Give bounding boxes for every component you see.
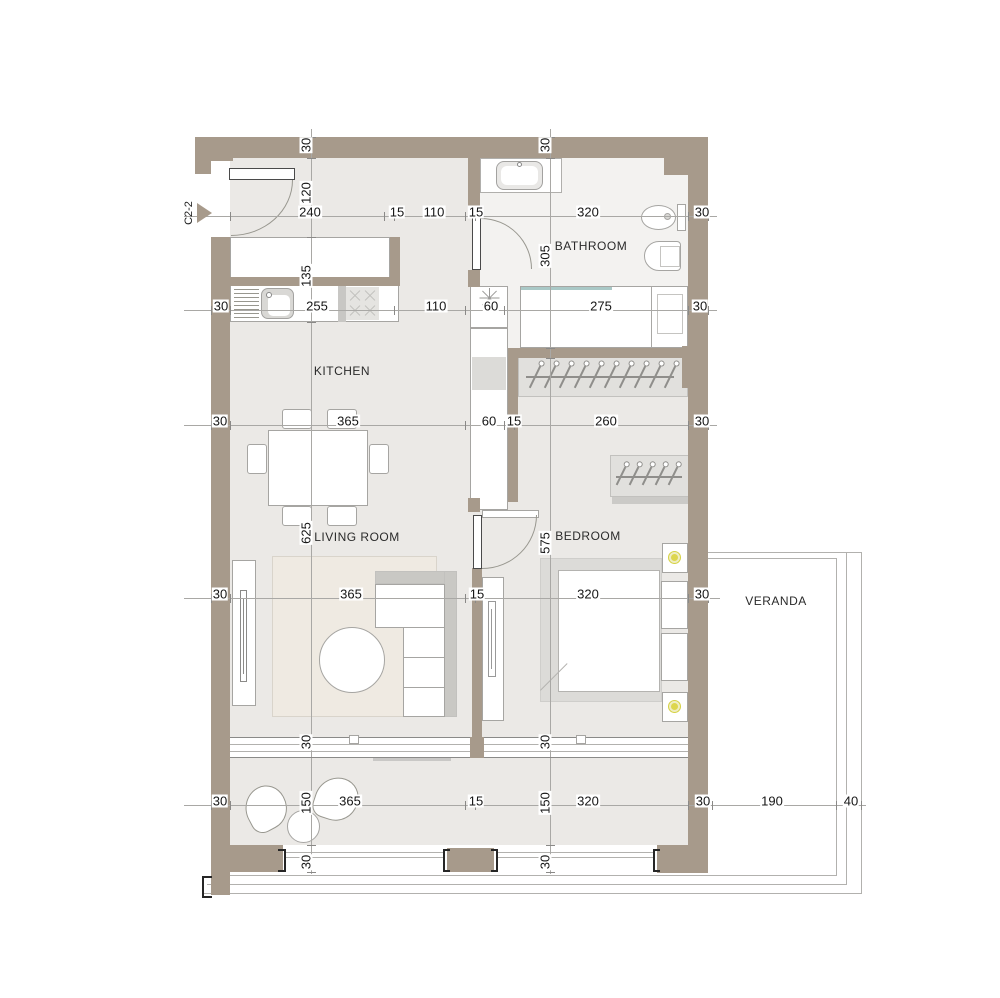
veranda-edge [861, 552, 862, 894]
dimension-label: 15 [468, 795, 484, 808]
washbasin-bowl [501, 166, 538, 185]
dimension-line [184, 425, 717, 426]
wall-closet-east [390, 237, 400, 286]
dimension-label: 30 [212, 415, 228, 428]
basin-tap-icon [517, 162, 522, 167]
kitchen-sink-bowl [268, 295, 290, 316]
tall-cabinet-block [472, 357, 506, 390]
railing-line [202, 893, 862, 894]
railing-line [207, 884, 847, 885]
bedroom-dresser-inner [488, 601, 496, 677]
wall-closet-south [230, 277, 400, 286]
bed-mattress [558, 570, 660, 692]
wall-bottom-left [211, 845, 283, 872]
dimension-label: 15 [469, 588, 485, 601]
bedroom-door-leaf [473, 515, 482, 569]
room-label-kitchen: KITCHEN [314, 364, 370, 378]
dimension-line [184, 310, 717, 311]
dimension-tick [230, 421, 231, 430]
dimension-line [184, 598, 720, 599]
toilet-cistern [677, 204, 686, 231]
dimension-tick [465, 212, 466, 221]
sofa-seat [403, 687, 445, 717]
dimension-tick [712, 801, 713, 810]
dimension-label: 30 [694, 415, 710, 428]
frame-bracket [443, 849, 450, 872]
dimension-tick [688, 801, 689, 810]
dimension-tick [688, 212, 689, 221]
dimension-label: 30 [212, 795, 228, 808]
sink-tap-icon [266, 292, 272, 298]
unit-marker-triangle-icon [197, 203, 212, 223]
bedroom-dresser-line [491, 609, 492, 669]
dimension-tick [688, 594, 689, 603]
dimension-tick [861, 801, 862, 810]
dimension-label: 255 [305, 300, 329, 313]
dimension-label: 275 [589, 300, 613, 313]
dimension-label: 150 [539, 791, 552, 815]
frame-bracket [653, 849, 660, 872]
unit-code-label: C2-2 [183, 201, 195, 225]
tv-screen-line [243, 598, 244, 674]
dimension-tick [836, 801, 837, 810]
wall-block-right [682, 346, 708, 388]
lamp-icon [671, 703, 678, 710]
dimension-tick [307, 322, 316, 323]
dimension-label: 110 [423, 206, 446, 219]
wall-bottom-right [657, 845, 708, 873]
dimension-tick [465, 306, 466, 315]
dimension-tick [307, 757, 316, 758]
dimension-tick [465, 801, 466, 810]
burner-icon [363, 304, 377, 318]
dimension-tick [307, 158, 316, 159]
dimension-label: 110 [425, 300, 448, 313]
dimension-line [184, 216, 717, 217]
coffee-table [319, 627, 385, 693]
shower-divider [651, 286, 652, 348]
dimension-tick [307, 872, 316, 873]
dimension-tick [546, 358, 555, 359]
dimension-label: 30 [539, 137, 552, 153]
dimension-label: 240 [298, 206, 322, 219]
dimension-tick [465, 594, 466, 603]
window-mullion [349, 735, 359, 744]
dimension-tick [307, 845, 316, 846]
headboard-cushion [661, 581, 688, 629]
dimension-line [311, 129, 312, 874]
wall-top [196, 137, 708, 158]
dimension-label: 30 [695, 795, 711, 808]
dimension-tick [546, 757, 555, 758]
dimension-label: 30 [539, 734, 552, 750]
dimension-label: 15 [468, 206, 484, 219]
dimension-label: 60 [481, 415, 497, 428]
dining-chair [369, 444, 389, 474]
dish-drainer [234, 289, 259, 318]
dimension-label: 15 [506, 415, 522, 428]
floor-plan: C2-2 24015110153203030255110602753030365… [0, 0, 1000, 998]
window-mullion [576, 735, 586, 744]
dimension-label: 30 [692, 300, 708, 313]
headboard-cushion [661, 633, 688, 681]
dimension-label: 60 [483, 300, 499, 313]
sliding-track [498, 857, 653, 858]
veranda-edge [846, 552, 847, 885]
dimension-tick [465, 421, 466, 430]
dining-chair [282, 409, 312, 429]
bidet-inner [660, 246, 680, 267]
window-glazing-line [230, 751, 688, 752]
dimension-label: 575 [539, 531, 552, 555]
dining-chair [327, 506, 357, 526]
dining-table [268, 430, 368, 506]
room-label-veranda: VERANDA [745, 594, 807, 608]
dimension-label: 15 [389, 206, 405, 219]
stove-side-panel [338, 285, 346, 322]
sofa-seat [403, 657, 445, 688]
dimension-line [550, 129, 551, 874]
dimension-label: 30 [694, 206, 710, 219]
shower-shelf [657, 294, 683, 334]
window-pier [470, 737, 484, 758]
room-label-bedroom: BEDROOM [555, 529, 621, 543]
dimension-tick [394, 306, 395, 315]
dimension-label: 30 [694, 588, 710, 601]
frame-bracket [202, 876, 212, 898]
dimension-label: 40 [843, 795, 859, 808]
wardrobe-shelf [612, 497, 690, 504]
dimension-tick [688, 306, 689, 315]
frame-bracket [278, 849, 286, 872]
dimension-tick [546, 845, 555, 846]
dimension-label: 30 [300, 137, 313, 153]
sofa-chaise-seat [375, 584, 445, 628]
sofa-back-right [444, 571, 457, 717]
dimension-tick [230, 801, 231, 810]
veranda-edge [708, 552, 862, 553]
sliding-track [498, 852, 653, 853]
dimension-label: 320 [576, 206, 600, 219]
veranda-edge [836, 558, 837, 876]
dimension-label: 135 [300, 264, 313, 288]
dimension-tick [688, 421, 689, 430]
dimension-label: 120 [300, 181, 313, 205]
window-sill [373, 758, 451, 761]
dimension-label: 305 [539, 244, 552, 268]
sofa-seat [403, 627, 445, 658]
dimension-label: 260 [594, 415, 618, 428]
dimension-tick [546, 158, 555, 159]
burner-icon [348, 304, 362, 318]
frame-bracket [491, 849, 498, 872]
dimension-tick [384, 212, 385, 221]
wall-bath-partition-south [468, 270, 480, 287]
dimension-label: 365 [336, 415, 360, 428]
dimension-label: 365 [338, 795, 362, 808]
dimension-tick [230, 212, 231, 221]
dimension-tick [546, 872, 555, 873]
wall-bottom-middle [447, 848, 494, 872]
dimension-label: 30 [212, 588, 228, 601]
dimension-label: 150 [300, 791, 313, 815]
dimension-tick [546, 348, 555, 349]
dimension-label: 365 [339, 588, 363, 601]
shower-glass-screen [521, 287, 612, 290]
dimension-tick [230, 306, 231, 315]
railing-line [213, 875, 836, 876]
dining-chair [247, 444, 267, 474]
veranda-edge [708, 558, 836, 559]
dimension-label: 30 [213, 300, 229, 313]
dimension-label: 190 [760, 795, 784, 808]
terrace-side-table [287, 810, 320, 843]
wall-top-left-block [195, 137, 211, 174]
dimension-label: 30 [539, 854, 552, 870]
dimension-label: 320 [576, 795, 600, 808]
room-label-living-room: LIVING ROOM [314, 530, 400, 544]
lamp-icon [671, 554, 678, 561]
wall-right [688, 158, 708, 845]
dimension-label: 30 [300, 734, 313, 750]
room-label-bathroom: BATHROOM [555, 239, 627, 253]
dimension-label: 320 [576, 588, 600, 601]
wall-bath-south [517, 348, 688, 358]
burner-icon [348, 289, 362, 303]
dimension-label: 625 [300, 521, 313, 545]
dimension-tick [230, 594, 231, 603]
dimension-tick [504, 306, 505, 315]
dimension-tick [307, 237, 316, 238]
bathroom-door-leaf [472, 217, 481, 270]
burner-icon [363, 289, 377, 303]
dimension-label: 30 [300, 854, 313, 870]
wall-door-jamb [468, 498, 480, 512]
entry-door-leaf [229, 168, 295, 180]
